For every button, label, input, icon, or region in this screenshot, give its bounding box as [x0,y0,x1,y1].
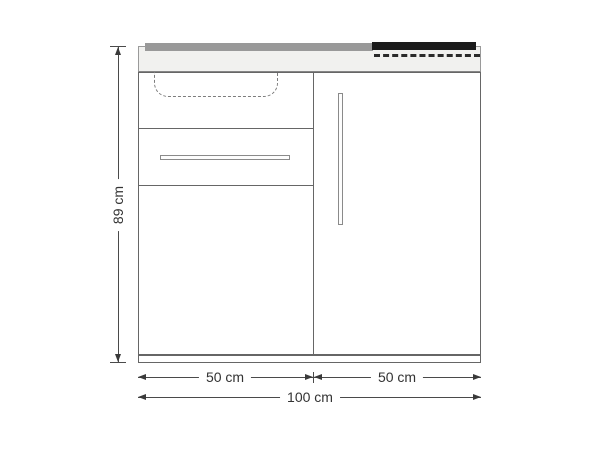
right-door-handle [338,93,343,225]
left-width-dimension-label: 50 cm [199,368,251,386]
center-divider [313,72,314,362]
arrow-right-icon [473,374,481,380]
plinth [138,355,481,363]
countertop-back-edge [145,43,373,51]
cooktop [372,42,476,50]
arrow-right-icon [305,374,313,380]
right-width-dimension-label: 50 cm [371,368,423,386]
sink-outline [154,72,278,97]
cabinet-body [138,72,481,355]
arrow-down-icon [115,354,121,362]
height-dimension-label: 89 cm [109,179,127,231]
sink-panel-divider-line [138,128,313,129]
drawer-handle [160,155,290,160]
height-dimension-tick-bottom [110,362,126,363]
kitchen-elevation-drawing: 89 cm 50 cm 50 cm 100 cm [0,0,600,450]
cooktop-dashed-line [374,54,480,57]
arrow-up-icon [115,47,121,55]
drawer-divider-line [138,185,313,186]
arrow-left-icon [138,394,146,400]
arrow-right-icon [473,394,481,400]
arrow-left-icon [138,374,146,380]
total-width-dimension-label: 100 cm [280,388,340,406]
arrow-left-icon [314,374,322,380]
